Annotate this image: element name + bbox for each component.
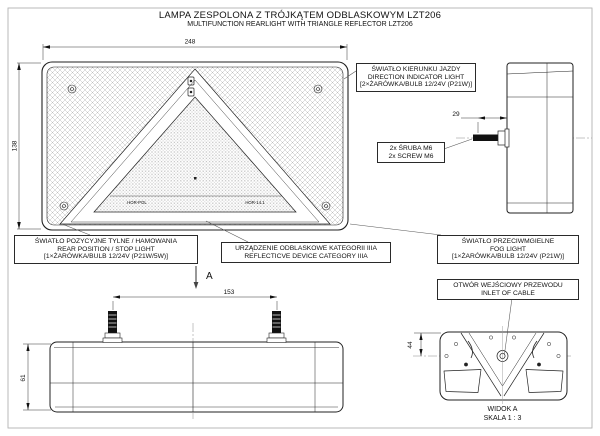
callout-inlet-pl: OTWÓR WEJŚCIOWY PRZEWODU xyxy=(441,282,575,290)
front-view xyxy=(42,62,348,230)
callout-fog-light: ŚWIATŁO PRZECIWMGIELNE FOG LIGHT [1×ŻARÓ… xyxy=(437,235,579,264)
bottom-view xyxy=(50,311,343,419)
screw-flange xyxy=(505,129,509,147)
dim-screw xyxy=(461,116,507,133)
callout-direction-en: DIRECTION INDICATOR LIGHT xyxy=(360,74,472,82)
leader-screws xyxy=(441,139,472,150)
dim-screw-label: 29 xyxy=(452,111,460,118)
leader-fog xyxy=(350,224,441,235)
callout-reflective-en: REFLECTICVE DEVICE CATEGORY IIIA xyxy=(225,253,387,261)
callout-cable-inlet: OTWÓR WEJŚCIOWY PRZEWODU INLET OF CABLE xyxy=(437,279,579,300)
drawing-title-en: MULTIFUNCTION REARLIGHT WITH TRIANGLE RE… xyxy=(0,21,600,29)
reflector-marking-right: HOR-14.1 xyxy=(245,200,265,205)
callout-stop-en: REAR POSITION / STOP LIGHT xyxy=(18,246,194,254)
callout-stop-bulb: [1×ŻARÓWKA/BULB 12/24V (P21W/5W)] xyxy=(18,253,194,261)
view-a-label: WIDOK A SKALA 1 : 3 xyxy=(440,406,565,423)
technical-drawing-page: HOR-POL HOR-14.1 248 138 29 xyxy=(0,0,600,436)
view-a-panel-right xyxy=(526,370,563,393)
drawing-title: LAMPA ZESPOLONA Z TRÓJKĄTEM ODBLASKOWYM … xyxy=(0,10,600,29)
callout-fog-pl: ŚWIATŁO PRZECIWMGIELNE xyxy=(441,238,575,246)
drawing-canvas: HOR-POL HOR-14.1 248 138 29 xyxy=(0,0,600,436)
dim-width xyxy=(43,44,347,60)
callout-fog-bulb: [1×ŻARÓWKA/BULB 12/24V (P21W)] xyxy=(441,253,575,261)
dim-studs xyxy=(113,295,277,310)
screw-thread xyxy=(473,135,498,142)
view-a-scale: SKALA 1 : 3 xyxy=(440,415,565,424)
dim-height-label: 138 xyxy=(12,140,19,151)
dim-height xyxy=(17,63,41,229)
dim-inlet xyxy=(414,333,441,356)
callout-stop-light: ŚWIATŁO POZYCYJNE TYLNE / HAMOWANIA REAR… xyxy=(14,235,198,264)
view-a-title: WIDOK A xyxy=(440,406,565,415)
callout-screws-pl: 2x ŚRUBA M6 xyxy=(381,145,441,153)
callout-fog-en: FOG LIGHT xyxy=(441,246,575,254)
callout-reflective-device: URZĄDZENIE ODBLASKOWE KATEGORII IIIA REF… xyxy=(221,242,391,263)
callout-direction-indicator: ŚWIATŁO KIERUNKU JAZDY DIRECTION INDICAT… xyxy=(356,63,476,92)
callout-screws-en: 2x SCREW M6 xyxy=(381,153,441,161)
callout-direction-pl: ŚWIATŁO KIERUNKU JAZDY xyxy=(360,66,472,74)
view-direction-arrow xyxy=(194,266,199,289)
callout-screws: 2x ŚRUBA M6 2x SCREW M6 xyxy=(377,142,445,163)
callout-inlet-en: INLET OF CABLE xyxy=(441,290,575,298)
dim-studs-label: 153 xyxy=(224,289,235,296)
side-body xyxy=(507,63,573,213)
dim-inlet-label: 44 xyxy=(407,341,414,349)
dim-bottom-height xyxy=(23,344,51,410)
bottom-body xyxy=(50,342,343,412)
dim-bottom-height-label: 61 xyxy=(20,374,27,382)
triangle-center-dot xyxy=(194,177,197,180)
mounting-stud-left xyxy=(103,311,122,343)
view-a-rivet-right xyxy=(537,363,541,367)
callout-reflective-pl: URZĄDZENIE ODBLASKOWE KATEGORII IIIA xyxy=(225,245,387,253)
drawing-title-pl: LAMPA ZESPOLONA Z TRÓJKĄTEM ODBLASKOWYM … xyxy=(0,10,600,21)
mounting-stud-right xyxy=(267,311,286,343)
view-a-rivet-left xyxy=(464,363,468,367)
view-direction-label: A xyxy=(206,271,213,282)
callout-stop-pl: ŚWIATŁO POZYCYJNE TYLNE / HAMOWANIA xyxy=(18,238,194,246)
reflector-marking-left: HOR-POL xyxy=(127,200,147,205)
side-view xyxy=(456,63,592,213)
callout-direction-bulb: [2×ŻARÓWKA/BULB 12/24V (P21W)] xyxy=(360,81,472,89)
view-a-panel-left xyxy=(444,370,481,393)
view-a xyxy=(413,326,571,404)
dim-width-label: 248 xyxy=(185,39,196,46)
